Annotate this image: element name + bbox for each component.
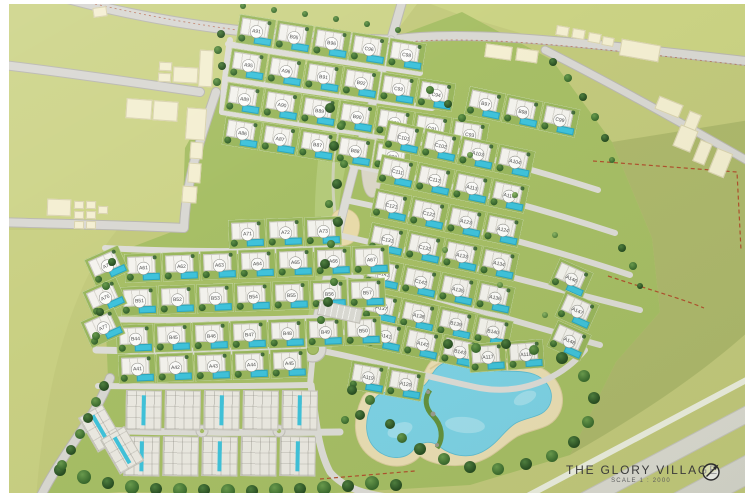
villa-shrub (351, 299, 358, 306)
tree (512, 192, 518, 198)
tree (464, 461, 476, 473)
villa-shrub (195, 342, 202, 349)
tree (102, 282, 110, 290)
tree (150, 483, 162, 493)
villa-shrub (230, 68, 238, 76)
townhouse-pool (297, 395, 302, 425)
villa-lot: B55 (272, 280, 310, 310)
villa-shrub (347, 337, 354, 344)
villa-label: A43 (206, 359, 219, 372)
tree (96, 308, 104, 316)
tree (549, 58, 557, 66)
neighbor-building (571, 28, 586, 40)
villa-lot: A90 (261, 88, 302, 122)
villa-label: B45 (166, 331, 179, 344)
villa-shrub (241, 270, 248, 277)
villa-label: A71 (240, 227, 253, 240)
villa-shrub (406, 250, 414, 258)
tree (546, 450, 558, 462)
tree (364, 21, 370, 27)
villa-lot: B46 (192, 321, 230, 351)
villa-shrub (541, 122, 549, 130)
villa-shrub (226, 102, 234, 110)
villa-lot: A89 (223, 82, 264, 116)
villa-shrub (387, 387, 395, 395)
villa-label: B51 (132, 294, 145, 307)
tree (497, 282, 503, 288)
villa-shrub (261, 142, 269, 150)
tree (347, 385, 357, 395)
villa-shrub (157, 343, 164, 350)
villa-lot: B95 (273, 20, 314, 54)
neighbor-building (125, 98, 152, 120)
neighbor-building (185, 107, 207, 140)
tree (414, 443, 426, 455)
tree (332, 179, 342, 189)
villa-shrub (271, 339, 278, 346)
villa-label: B48 (280, 327, 293, 340)
tree (333, 16, 339, 22)
villa-lot: A96 (265, 54, 306, 88)
tree (442, 247, 448, 253)
scale-label: SCALE 1 : 2000 (566, 478, 716, 484)
villa-shrub (459, 156, 467, 164)
villa-lot: A41 (118, 354, 156, 384)
villa-label: B44 (128, 332, 141, 345)
villa-shrub (410, 216, 418, 224)
villa-lot: A45 (270, 348, 308, 378)
tree (637, 283, 643, 289)
tree (501, 339, 511, 349)
neighbor-building (158, 73, 171, 83)
villa-label: B52 (170, 293, 183, 306)
villa-shrub (238, 34, 246, 42)
tree (385, 419, 395, 429)
townhouse-block (164, 390, 201, 431)
tree (568, 436, 580, 448)
villa-label: B47 (242, 328, 255, 341)
villa-shrub (376, 126, 384, 134)
villa-shrub (378, 174, 386, 182)
villa-lot: B45 (154, 322, 192, 352)
villa-lot: A61 (124, 253, 162, 283)
tree (294, 483, 306, 493)
tree (578, 370, 590, 382)
tree (492, 463, 504, 475)
villa-lot: A86 (221, 116, 262, 150)
tree (214, 46, 222, 54)
tree (271, 7, 277, 13)
villa-shrub (484, 232, 492, 240)
villa-lot: B54 (234, 282, 272, 312)
townhouse-block (242, 390, 279, 431)
tree (330, 278, 338, 286)
villa-shrub (235, 371, 242, 378)
tree (458, 114, 466, 122)
villa-lot: A43 (194, 351, 232, 381)
villa-shrub (476, 300, 484, 308)
tree (302, 11, 308, 17)
villa-lot: A95 (227, 48, 268, 82)
tree (629, 262, 637, 270)
villa-shrub (224, 136, 232, 144)
villa-lot: A44 (232, 350, 270, 380)
tree (66, 445, 76, 455)
villa-label: A64 (250, 257, 263, 270)
tree (91, 397, 101, 407)
villa-label: A65 (288, 256, 301, 269)
tree (552, 232, 558, 238)
villa-row: A71A72A73 (228, 216, 342, 249)
tree (529, 345, 539, 355)
villa-label: B57 (360, 286, 373, 299)
villa-shrub (496, 164, 504, 172)
tree (365, 395, 375, 405)
villa-shrub (197, 372, 204, 379)
villa-lot: B48 (268, 318, 306, 348)
villa-lot: A118 (506, 339, 545, 371)
tree (325, 103, 335, 113)
tree (108, 258, 116, 266)
project-title: THE GLORY VILLAGE (566, 463, 716, 477)
villa-shrub (273, 369, 280, 376)
neighbor-building (159, 62, 172, 72)
tree (92, 332, 100, 340)
villa-lot: C98 (386, 38, 427, 72)
townhouse-pool (219, 395, 224, 425)
villa-shrub (441, 354, 449, 362)
neighbor-building (74, 211, 84, 219)
villa-shrub (237, 303, 244, 310)
townhouse-block (279, 436, 316, 477)
tree (217, 30, 225, 38)
villa-label: A45 (282, 357, 295, 370)
tree (57, 460, 67, 470)
villa-shrub (161, 305, 168, 312)
tree (340, 160, 348, 168)
townhouse-block (203, 390, 240, 431)
villa-label: A42 (168, 361, 181, 374)
tree (564, 74, 572, 82)
villa-shrub (127, 274, 134, 281)
tree (99, 381, 109, 391)
villa-shrub (233, 341, 240, 348)
villa-shrub (305, 80, 313, 88)
neighbor-building (86, 201, 96, 209)
villa-lot: A71 (228, 219, 266, 249)
tree (198, 484, 210, 493)
villa-shrub (313, 46, 321, 54)
tree (327, 240, 335, 248)
neighbor-building (47, 199, 72, 217)
tree (438, 453, 450, 465)
villa-label: A67 (364, 253, 377, 266)
villa-label: A72 (278, 226, 291, 239)
villa-label: B54 (246, 290, 259, 303)
tree (323, 297, 333, 307)
villa-lot: B53 (196, 283, 234, 313)
villa-shrub (453, 190, 461, 198)
tree (395, 27, 401, 33)
compass-north-icon (700, 461, 722, 483)
tree (75, 429, 85, 439)
villa-shrub (119, 345, 126, 352)
villa-shrub (231, 240, 238, 247)
villa-lot: A63 (200, 250, 238, 280)
tree (317, 481, 331, 493)
tree (337, 122, 345, 130)
villa-label: B53 (208, 291, 221, 304)
villa-shrub (504, 114, 512, 122)
neighbor-building (198, 50, 214, 88)
villa-shrub (443, 258, 451, 266)
villa-shrub (384, 140, 392, 148)
villa-shrub (279, 268, 286, 275)
neighbor-building (187, 163, 201, 184)
townhouse-block (201, 436, 238, 477)
tree (320, 259, 330, 269)
neighbor-building (86, 221, 96, 229)
villa-lot: A120 (384, 367, 425, 402)
tree (471, 343, 481, 353)
villa-shrub (439, 292, 447, 300)
tree (213, 78, 221, 86)
tree (601, 134, 609, 142)
villa-shrub (388, 58, 396, 66)
tree (397, 433, 407, 443)
villa-shrub (309, 338, 316, 345)
tree (325, 200, 333, 208)
tree (355, 410, 365, 420)
neighbor-building (601, 36, 614, 47)
villa-shrub (199, 304, 206, 311)
tree (390, 479, 402, 491)
tree (426, 86, 434, 94)
villa-shrub (422, 148, 430, 156)
villa-shrub (159, 373, 166, 380)
tree (329, 141, 339, 151)
villa-shrub (301, 114, 309, 122)
tree (333, 217, 343, 227)
villa-lot: A42 (156, 352, 194, 382)
townhouse-pool (141, 395, 146, 425)
villa-shrub (203, 271, 210, 278)
neighbor-building (152, 100, 178, 122)
villa-label: A61 (136, 261, 149, 274)
villa-shrub (509, 361, 516, 368)
tree (341, 416, 349, 424)
neighbor-building (181, 185, 197, 203)
neighbor-building (189, 142, 203, 160)
villa-label: A41 (130, 362, 143, 375)
villa-lot: A64 (238, 249, 276, 279)
townhouse-pool (217, 441, 222, 471)
tree (83, 413, 93, 423)
villa-shrub (267, 74, 275, 82)
tree (609, 157, 615, 163)
villa-lot: A67 (352, 245, 390, 275)
tree (444, 100, 452, 108)
villa-shrub (123, 307, 130, 314)
villa-shrub (355, 266, 362, 273)
tree (218, 62, 226, 70)
villa-shrub (269, 238, 276, 245)
tree (591, 113, 599, 121)
tree (556, 352, 568, 364)
townhouse-block (162, 436, 199, 477)
villa-shrub (466, 106, 474, 114)
villa-shrub (350, 52, 358, 60)
tree (221, 484, 235, 493)
villa-shrub (480, 266, 488, 274)
villa-lot: B91 (303, 60, 344, 94)
tree (77, 470, 91, 484)
villa-label: A117 (481, 350, 495, 364)
villa-shrub (490, 198, 498, 206)
villa-lot: B49 (306, 317, 344, 347)
villa-shrub (372, 208, 380, 216)
tree (582, 416, 594, 428)
villa-shrub (416, 182, 424, 190)
townhouse-pool (113, 436, 131, 464)
villa-lot: B47 (230, 320, 268, 350)
townhouse-pool (295, 441, 300, 471)
villa-label: B55 (284, 289, 297, 302)
tree (269, 483, 283, 493)
townhouse-block (281, 390, 318, 431)
villa-shrub (402, 284, 410, 292)
tree (246, 485, 258, 493)
villa-lot: A65 (276, 247, 314, 277)
neighbor-building (92, 6, 107, 18)
neighbor-building (74, 221, 84, 229)
villa-lot: B57 (348, 278, 386, 308)
villa-lot: B96 (311, 26, 352, 60)
villa-shrub (165, 272, 172, 279)
neighbor-building (555, 25, 570, 37)
title-block: THE GLORY VILLAGE SCALE 1 : 2000 (566, 463, 716, 484)
villa-lot: A72 (266, 217, 304, 247)
villa-shrub (380, 92, 388, 100)
villa-shrub (471, 363, 478, 370)
neighbor-building (587, 32, 602, 44)
villa-lot: C96 (348, 32, 389, 66)
plan-world: A91B95B96C96C98A95A96B91B92C92C94A89A90B… (9, 4, 745, 493)
villa-shrub (447, 224, 455, 232)
villa-shrub (263, 108, 271, 116)
tree (542, 312, 548, 318)
tree (317, 316, 325, 324)
tree (588, 392, 600, 404)
master-plan-map: A91B95B96C96C98A95A96B91B92C92C94A89A90B… (9, 4, 745, 493)
villa-shrub (121, 375, 128, 382)
neighbor-building (173, 66, 199, 83)
villa-lot: A91 (235, 14, 276, 48)
tree (173, 483, 187, 493)
villa-shrub (342, 86, 350, 94)
tree (102, 477, 114, 489)
tree (342, 480, 354, 492)
villa-shrub (299, 148, 307, 156)
tree (520, 458, 532, 470)
tree (579, 93, 587, 101)
villa-shrub (275, 301, 282, 308)
villa-shrub (275, 40, 283, 48)
villa-lot: A62 (162, 251, 200, 281)
villa-label: A63 (212, 258, 225, 271)
villa-label: B46 (204, 329, 217, 342)
master-plan-page: A91B95B96C96C98A95A96B91B92C92C94A89A90B… (0, 0, 750, 500)
townhouse-block (125, 390, 162, 431)
neighbor-building (86, 211, 96, 219)
villa-label: B50 (356, 324, 369, 337)
tree (365, 476, 379, 490)
tree (618, 244, 626, 252)
villa-label: A44 (244, 358, 257, 371)
villa-shrub (404, 346, 412, 354)
villa-lot: C92 (378, 72, 419, 106)
townhouse-block (240, 436, 277, 477)
villa-lot: B92 (340, 66, 381, 100)
villa-lot: A87 (259, 122, 300, 156)
tree (125, 480, 139, 493)
tree (467, 152, 473, 158)
villa-shrub (417, 98, 425, 106)
villa-label: A62 (174, 260, 187, 273)
villa-shrub (307, 237, 314, 244)
villa-label: B49 (318, 325, 331, 338)
villa-lot: B52 (158, 284, 196, 314)
tree (443, 339, 453, 349)
neighbor-building (74, 201, 84, 209)
villa-label: A73 (316, 224, 329, 237)
neighbor-building (98, 206, 108, 214)
